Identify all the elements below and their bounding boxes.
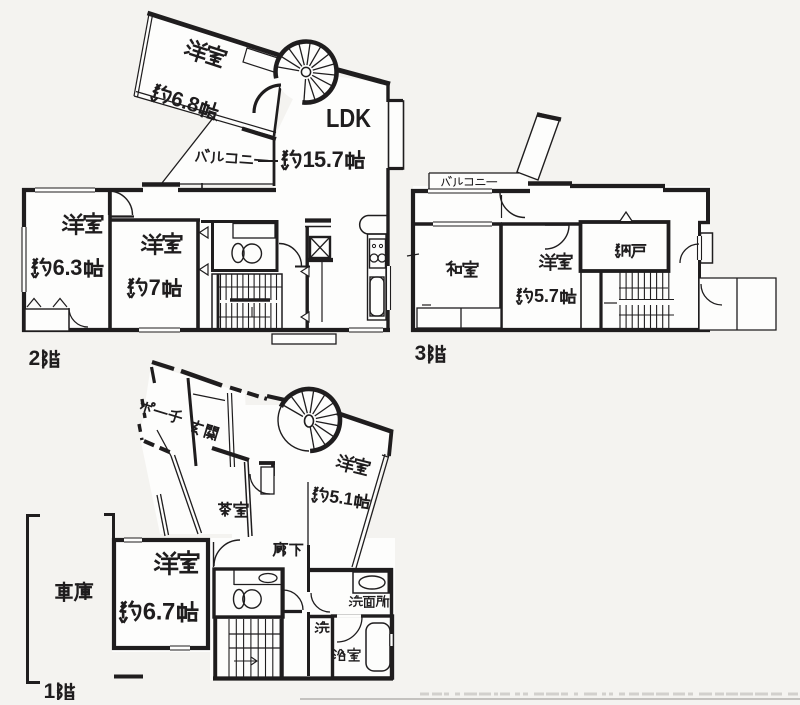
svg-text:6: 6 [143, 598, 156, 625]
svg-text:6: 6 [53, 255, 65, 280]
svg-text:7: 7 [149, 275, 161, 300]
svg-text:1: 1 [44, 680, 56, 700]
svg-text:1: 1 [303, 147, 315, 172]
svg-text:7: 7 [549, 286, 559, 306]
svg-text:LDK: LDK [326, 103, 371, 133]
svg-text:2: 2 [29, 347, 41, 370]
svg-text:5: 5 [534, 286, 544, 306]
svg-text:3: 3 [70, 255, 82, 280]
svg-text:7: 7 [332, 147, 344, 172]
svg-text:5: 5 [314, 147, 326, 172]
svg-text:7: 7 [162, 598, 175, 625]
svg-text:3: 3 [415, 342, 427, 365]
